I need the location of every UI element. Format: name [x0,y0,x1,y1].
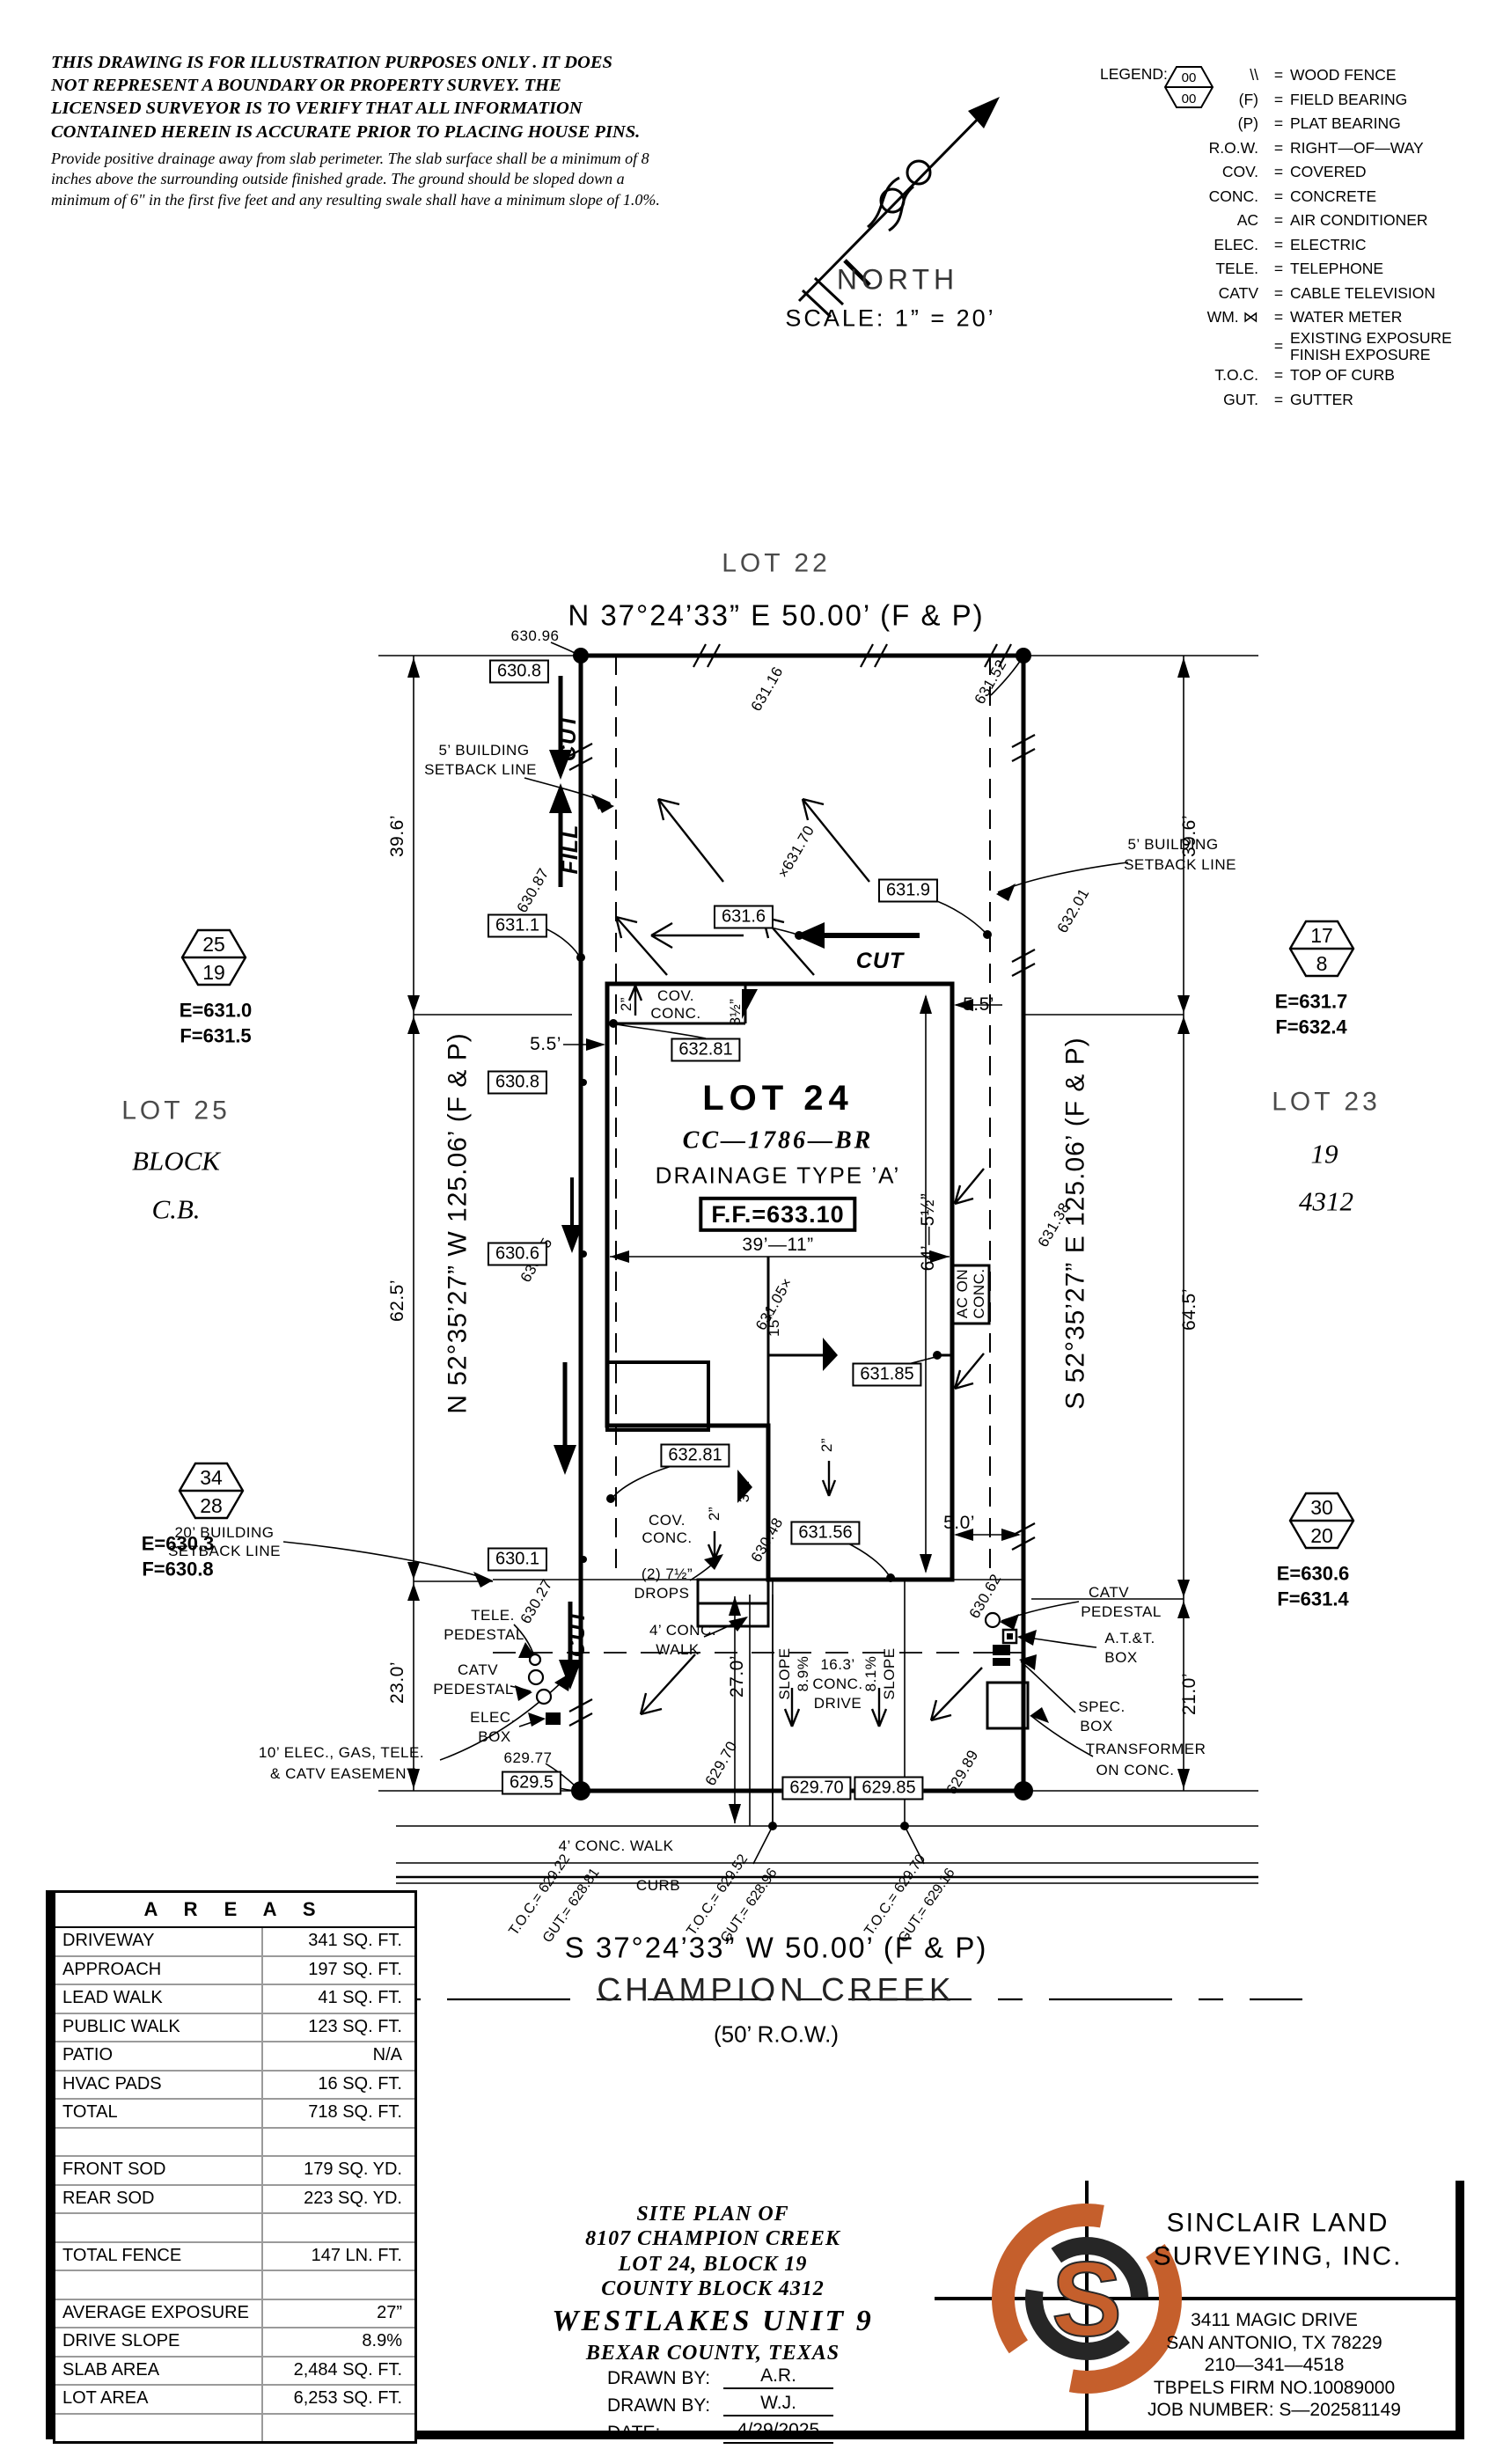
plan-label: 5’ BUILDING [1127,837,1218,853]
plan-label: CONC. [972,1268,987,1318]
areas-table-row: AVERAGE EXPOSURE27” [55,2300,414,2329]
plan-label: 630.8 [488,1071,547,1095]
legend-row: ELEC.=ELECTRIC [1162,233,1470,258]
plan-label: 19 [202,962,225,983]
areas-row-label: SLAB AREA [55,2358,263,2385]
areas-row-label: DRIVE SLOPE [55,2328,263,2356]
legend-row: 0000=EXISTING EXPOSUREFINISH EXPOSURE [1162,330,1470,364]
plan-label: FILL [559,825,582,875]
areas-row-label: REAR SOD [55,2186,263,2213]
areas-row-label: APPROACH [55,1957,263,1984]
rear-bearing: N 37°24’33” E 50.00’ (F & P) [568,601,984,632]
plan-label: 30 [1310,1497,1333,1518]
legend-row: GUT.=GUTTER [1162,388,1470,413]
plan-label: BOX [1080,1719,1112,1734]
legend-equals: = [1267,163,1290,181]
plan-label: 2” [707,1507,722,1521]
lot-25-label: LOT 25 [121,1096,231,1125]
drawn-by-label: DRAWN BY: [607,2395,723,2416]
legend-row: R.O.W.=RIGHT—OF—WAY [1162,136,1470,161]
plan-label: 629.70 [781,1777,851,1800]
plan-label: 62.5’ [388,1280,407,1322]
job-number: JOB NUMBER: S—202581149 [1148,2399,1401,2422]
firm-address2: SAN ANTONIO, TX 78229 [1148,2332,1401,2355]
plan-label: E=631.0 [180,1000,253,1020]
areas-row-value: 123 SQ. FT. [263,2014,414,2042]
north-label: NORTH [837,264,958,297]
legend-description: WOOD FENCE [1290,67,1470,84]
legend-description: RIGHT—OF—WAY [1290,140,1470,157]
plan-label: A.T.&T. [1104,1631,1155,1646]
areas-table-row: TOTAL718 SQ. FT. [55,2100,414,2129]
areas-row-value: 147 LN. FT. [263,2243,414,2270]
plan-label: COV. [649,1513,686,1529]
areas-row-value: 179 SQ. YD. [263,2157,414,2184]
legend-symbol: CONC. [1162,187,1267,206]
areas-row-label: LOT AREA [55,2386,263,2413]
areas-table-row: LEAD WALK41 SQ. FT. [55,1985,414,2014]
legend-row: WM. ⋈=WATER METER [1162,305,1470,330]
legend-title: LEGEND: [1100,65,1168,84]
legend-equals: = [1267,91,1290,109]
title-line: SITE PLAN OF [493,2202,933,2226]
areas-table-row [55,2214,414,2243]
areas-row-value: 6,253 SQ. FT. [263,2386,414,2413]
plan-label: 25 [202,934,225,955]
areas-row-label: DRIVEWAY [55,1928,263,1955]
legend-equals: = [1267,366,1290,385]
plan-label: CC—1786—BR [683,1127,874,1153]
plan-label: COV. [657,988,694,1004]
areas-table-row [55,2271,414,2300]
title-line: 8107 CHAMPION CREEK [493,2226,933,2251]
legend-row: COV.=COVERED [1162,160,1470,185]
plan-label: ON CONC. [1096,1763,1175,1778]
plan-label: 17 [1310,925,1333,946]
plan-label: & CATV EASEMENT [270,1766,416,1782]
legend-description: COVERED [1290,164,1470,180]
legend-row: (P)=PLAT BEARING [1162,112,1470,136]
finished-floor-elevation: F.F.=633.10 [699,1197,856,1232]
areas-row-label [55,2129,263,2156]
lot-23-label: LOT 23 [1272,1088,1381,1116]
title-line: LOT 24, BLOCK 19 [493,2252,933,2277]
plan-label: CUT [856,950,904,972]
plan-label: 20’ BUILDING [174,1525,274,1541]
plan-label: F=632.4 [1275,1016,1346,1037]
areas-row-value [263,2271,414,2299]
plan-label: F=631.4 [1277,1588,1348,1609]
plan-label: 39’—11” [742,1236,813,1255]
plan-label: 21.0’ [1180,1673,1199,1715]
plan-label: 631.6 [714,906,774,929]
legend-row: CONC.=CONCRETE [1162,185,1470,209]
plan-label: PEDESTAL [433,1682,514,1698]
plan-label: DRIVE [814,1696,862,1712]
drawn-by-2: W.J. [723,2393,833,2416]
legend-description: TOP OF CURB [1290,367,1470,384]
lot-24-label: LOT 24 [702,1080,854,1117]
plan-label: (50’ R.O.W.) [714,2022,839,2046]
plan-label: F=631.5 [180,1025,251,1045]
drawn-by-1: A.R. [723,2365,833,2389]
plan-label: 27.0’ [728,1655,747,1698]
areas-row-value: 16 SQ. FT. [263,2072,414,2099]
areas-row-label: PATIO [55,2042,263,2070]
legend-equals: = [1267,66,1290,84]
legend-equals: = [1267,187,1290,206]
legend-row: TELE.=TELEPHONE [1162,257,1470,282]
legend-symbol: AC [1162,211,1267,230]
areas-row-label: PUBLIC WALK [55,2014,263,2042]
legend-symbol: ELEC. [1162,236,1267,254]
plan-label: 631.56 [790,1522,860,1545]
legend-description: AIR CONDITIONER [1290,212,1470,229]
areas-row-value [263,2129,414,2156]
legend-description: WATER METER [1290,309,1470,326]
areas-table-row: HVAC PADS16 SQ. FT. [55,2072,414,2101]
plan-label: 39.6’ [1180,815,1199,857]
legend-row: T.O.C.=TOP OF CURB [1162,363,1470,388]
areas-row-value: N/A [263,2042,414,2070]
plan-label: 631.85 [852,1363,921,1387]
plan-label: 5.0’ [943,1514,975,1533]
plan-label: 64.5’ [1180,1288,1199,1331]
plan-label: 629.5 [502,1771,561,1795]
plan-label: 630.96 [511,628,560,644]
areas-table-row: DRIVEWAY341 SQ. FT. [55,1928,414,1957]
plan-label: 629.77 [504,1750,553,1766]
areas-row-label [55,2214,263,2241]
plan-label: 8.1% [863,1656,879,1692]
plan-label: F=630.8 [142,1558,213,1579]
areas-row-value: 197 SQ. FT. [263,1957,414,1984]
plan-label: E=630.6 [1277,1563,1350,1583]
plan-label: 632.81 [671,1038,740,1062]
svg-text:00: 00 [1182,92,1197,106]
legend-symbol: COV. [1162,163,1267,181]
legend-symbol: WM. ⋈ [1162,308,1267,326]
disclaimer-line: LICENSED SURVEYOR IS TO VERIFY THAT ALL … [51,97,729,120]
front-bearing: S 37°24’33” W 50.00’ (F & P) [565,1933,988,1964]
plan-label: 629.85 [854,1777,923,1800]
plan-label: 15” [766,1314,782,1337]
drawn-by-label: DRAWN BY: [607,2368,723,2389]
areas-table-row: PATION/A [55,2042,414,2072]
firm-license: TBPELS FIRM NO.10089000 [1148,2377,1401,2400]
firm-address1: 3411 MAGIC DRIVE [1148,2309,1401,2332]
legend-description: EXISTING EXPOSUREFINISH EXPOSURE [1290,330,1470,364]
plan-label: CONC. [642,1530,692,1546]
legend-description: GUTTER [1290,392,1470,408]
plan-label: CATV [458,1662,498,1678]
plan-label: CUT [557,714,580,761]
plan-label: ELEC. [470,1710,516,1726]
plan-label: 28 [200,1495,223,1516]
scale-label: SCALE: 1” = 20’ [785,305,995,333]
areas-row-value: 2,484 SQ. FT. [263,2358,414,2385]
plan-label: CONC. [650,1006,700,1022]
legend-equals: = [1267,260,1290,278]
areas-table-row: TOTAL FENCE147 LN. FT. [55,2243,414,2272]
plan-label: 23.0’ [388,1661,407,1704]
areas-row-label: HVAC PADS [55,2072,263,2099]
plan-label: CUT [566,1610,589,1657]
legend-equals: = [1267,139,1290,158]
legend-symbol: (P) [1162,114,1267,133]
plan-label: BOX [1104,1650,1137,1666]
plan-label: 4’ CONC. WALK [559,1838,674,1854]
areas-table-row: FRONT SOD179 SQ. YD. [55,2157,414,2186]
disclaimer-notes: THIS DRAWING IS FOR ILLUSTRATION PURPOSE… [51,51,729,210]
legend-equals: = [1267,284,1290,303]
plan-label: 34 [200,1467,223,1488]
plan-label: SLOPE [777,1647,793,1699]
legend-description: TELEPHONE [1290,260,1470,277]
county-line: BEXAR COUNTY, TEXAS [493,2341,933,2365]
areas-row-value: 718 SQ. FT. [263,2100,414,2127]
legend-row: AC=AIR CONDITIONER [1162,209,1470,233]
disclaimer-line: NOT REPRESENT A BOUNDARY OR PROPERTY SUR… [51,74,729,97]
plan-label: PEDESTAL [1081,1604,1162,1620]
areas-table-row: LOT AREA6,253 SQ. FT. [55,2386,414,2415]
plan-label: BOX [478,1729,510,1745]
legend-description: PLAT BEARING [1290,115,1470,132]
svg-text:00: 00 [1182,70,1197,85]
areas-table-row: DRIVE SLOPE8.9% [55,2328,414,2358]
areas-row-label [55,2415,263,2442]
plan-label: 64’—5½” [919,1193,938,1272]
lot-22-label: LOT 22 [722,549,831,577]
plan-label: 19 [1311,1140,1338,1170]
areas-row-value: 27” [263,2300,414,2328]
plan-label: 3½” [728,999,744,1026]
legend-equals: = [1267,236,1290,254]
areas-row-label: LEAD WALK [55,1985,263,2013]
areas-table-row: REAR SOD223 SQ. YD. [55,2186,414,2215]
legend-equals: = [1267,114,1290,133]
legend-equals: = [1267,308,1290,326]
legend-description: ELECTRIC [1290,237,1470,253]
plan-label: TRANSFORMER [1086,1742,1206,1757]
plan-label: TELE. [471,1608,515,1624]
legend-row: CATV=CABLE TELEVISION [1162,282,1470,306]
areas-row-label: FRONT SOD [55,2157,263,2184]
legend-equals: = [1267,391,1290,409]
legend-symbol: TELE. [1162,260,1267,278]
areas-table-row [55,2129,414,2158]
plan-label: E=631.7 [1275,991,1348,1011]
plan-label: 5.5’ [530,1035,561,1054]
firm-name-line1: SINCLAIR LAND [1154,2207,1403,2240]
areas-row-label [55,2271,263,2299]
legend-symbol: CATV [1162,284,1267,303]
legend-equals: = [1267,337,1290,356]
plan-label: 16.3’ [820,1657,854,1673]
areas-row-value: 8.9% [263,2328,414,2356]
plan-label: 630.1 [488,1548,547,1572]
plan-label: AC ON [955,1269,971,1318]
plan-label: SETBACK LINE [1124,857,1236,873]
plan-label: 2” [619,997,634,1011]
plan-label: 630.6 [488,1243,547,1266]
legend-description: FIELD BEARING [1290,92,1470,108]
plan-label: C.B. [151,1196,200,1225]
areas-table-row [55,2415,414,2442]
areas-table: A R E A S DRIVEWAY341 SQ. FT.APPROACH197… [53,1890,417,2444]
title-line: COUNTY BLOCK 4312 [493,2277,933,2301]
exposure-hexagon-icon: 0000 [1162,63,1216,111]
date-value: 4/29/2025 [723,2420,833,2444]
subdivision-name: WESTLAKES UNIT 9 [493,2304,933,2339]
legend-symbol: R.O.W. [1162,139,1267,158]
plan-label: 632.81 [660,1444,730,1468]
firm-name-line2: SURVEYING, INC. [1154,2240,1403,2273]
areas-row-value: 341 SQ. FT. [263,1928,414,1955]
drawn-by-block: DRAWN BY: A.R. DRAWN BY: W.J. DATE: 4/29… [607,2365,833,2447]
logo-letter: S [1052,2240,1122,2358]
areas-row-value [263,2415,414,2442]
plan-label: DROPS [634,1586,690,1602]
disclaimer-line: THIS DRAWING IS FOR ILLUSTRATION PURPOSE… [51,51,729,74]
disclaimer-line: CONTAINED HEREIN IS ACCURATE PRIOR TO PL… [51,121,729,143]
plan-label: CURB [636,1878,680,1894]
plan-label: 8 [1316,953,1328,974]
legend-description: CONCRETE [1290,188,1470,205]
plan-label: 4’ CONC. [649,1623,716,1639]
plan-label: PEDESTAL [444,1627,524,1643]
plan-label: (2) 7½” [642,1566,693,1582]
firm-info: 3411 MAGIC DRIVE SAN ANTONIO, TX 78229 2… [1148,2309,1401,2422]
title-block: SITE PLAN OF 8107 CHAMPION CREEK LOT 24,… [493,2202,933,2366]
plan-label: 631.9 [878,879,938,903]
legend-equals: = [1267,211,1290,230]
plan-label: CONC. [812,1676,862,1692]
plan-label: 631.1 [488,914,547,938]
street-name: CHAMPION CREEK [597,1974,955,2008]
plan-label: WALK [656,1642,700,1658]
firm-phone: 210—341—4518 [1148,2354,1401,2377]
drainage-note: Provide positive drainage away from slab… [51,149,685,210]
plan-label: CATV [1089,1585,1129,1601]
plan-label: SETBACK LINE [424,762,537,778]
plan-label: 5’ BUILDING [438,743,529,759]
plan-label: 3½” [737,1476,752,1503]
plan-label: 10’ ELEC., GAS, TELE. [259,1745,424,1761]
plan-label: 5.5’ [963,995,994,1015]
site-plan-sheet: S THIS DRAWING IS FOR ILLUSTRATION PURPO… [0,0,1496,2464]
plan-label: BLOCK [132,1148,220,1177]
east-bearing: S 52°35’27” E 125.06’ (F & P) [1061,1037,1089,1409]
areas-table-row: PUBLIC WALK123 SQ. FT. [55,2014,414,2043]
areas-table-title: A R E A S [55,1893,414,1928]
plan-label: 630.8 [489,660,549,684]
west-bearing: N 52°35’27” W 125.06’ (F & P) [444,1032,472,1413]
areas-row-label: TOTAL FENCE [55,2243,263,2270]
plan-label: 39.6’ [388,815,407,857]
areas-row-value: 223 SQ. YD. [263,2186,414,2213]
plan-label: SPEC. [1078,1699,1126,1715]
firm-name: SINCLAIR LAND SURVEYING, INC. [1154,2207,1403,2273]
plan-label: 8.9% [796,1656,811,1692]
areas-row-value [263,2214,414,2241]
plan-label: SETBACK LINE [168,1544,281,1559]
plan-label: DRAINAGE TYPE ’A’ [656,1163,901,1187]
areas-table-row: SLAB AREA2,484 SQ. FT. [55,2358,414,2387]
plan-label: SLOPE [882,1647,898,1699]
areas-row-label: AVERAGE EXPOSURE [55,2300,263,2328]
plan-label: 2” [819,1438,835,1452]
plan-label: 4312 [1299,1188,1353,1217]
areas-table-row: APPROACH197 SQ. FT. [55,1957,414,1986]
plan-label: 20 [1310,1525,1333,1546]
legend-symbol: GUT. [1162,391,1267,409]
legend-description: CABLE TELEVISION [1290,285,1470,302]
areas-row-value: 41 SQ. FT. [263,1985,414,2013]
areas-row-label: TOTAL [55,2100,263,2127]
legend-symbol: T.O.C. [1162,366,1267,385]
date-label: DATE: [607,2423,723,2444]
